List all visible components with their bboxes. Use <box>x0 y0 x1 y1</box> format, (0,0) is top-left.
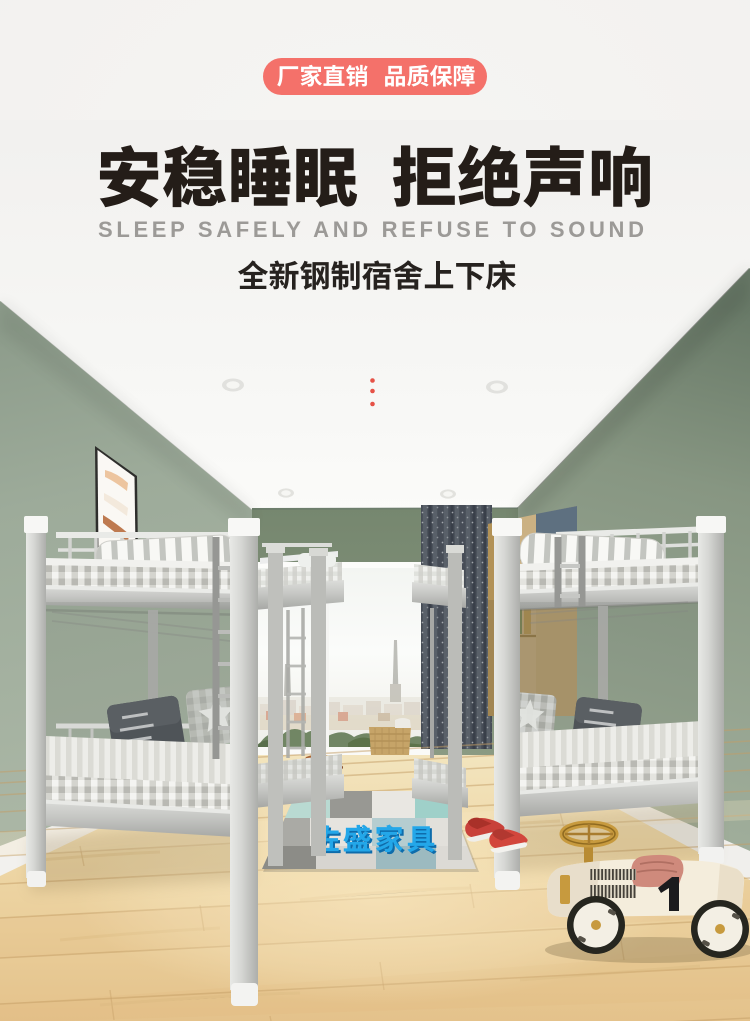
svg-text:SLEEP SAFELY AND REFUSE TO SOU: SLEEP SAFELY AND REFUSE TO SOUND <box>98 217 644 242</box>
